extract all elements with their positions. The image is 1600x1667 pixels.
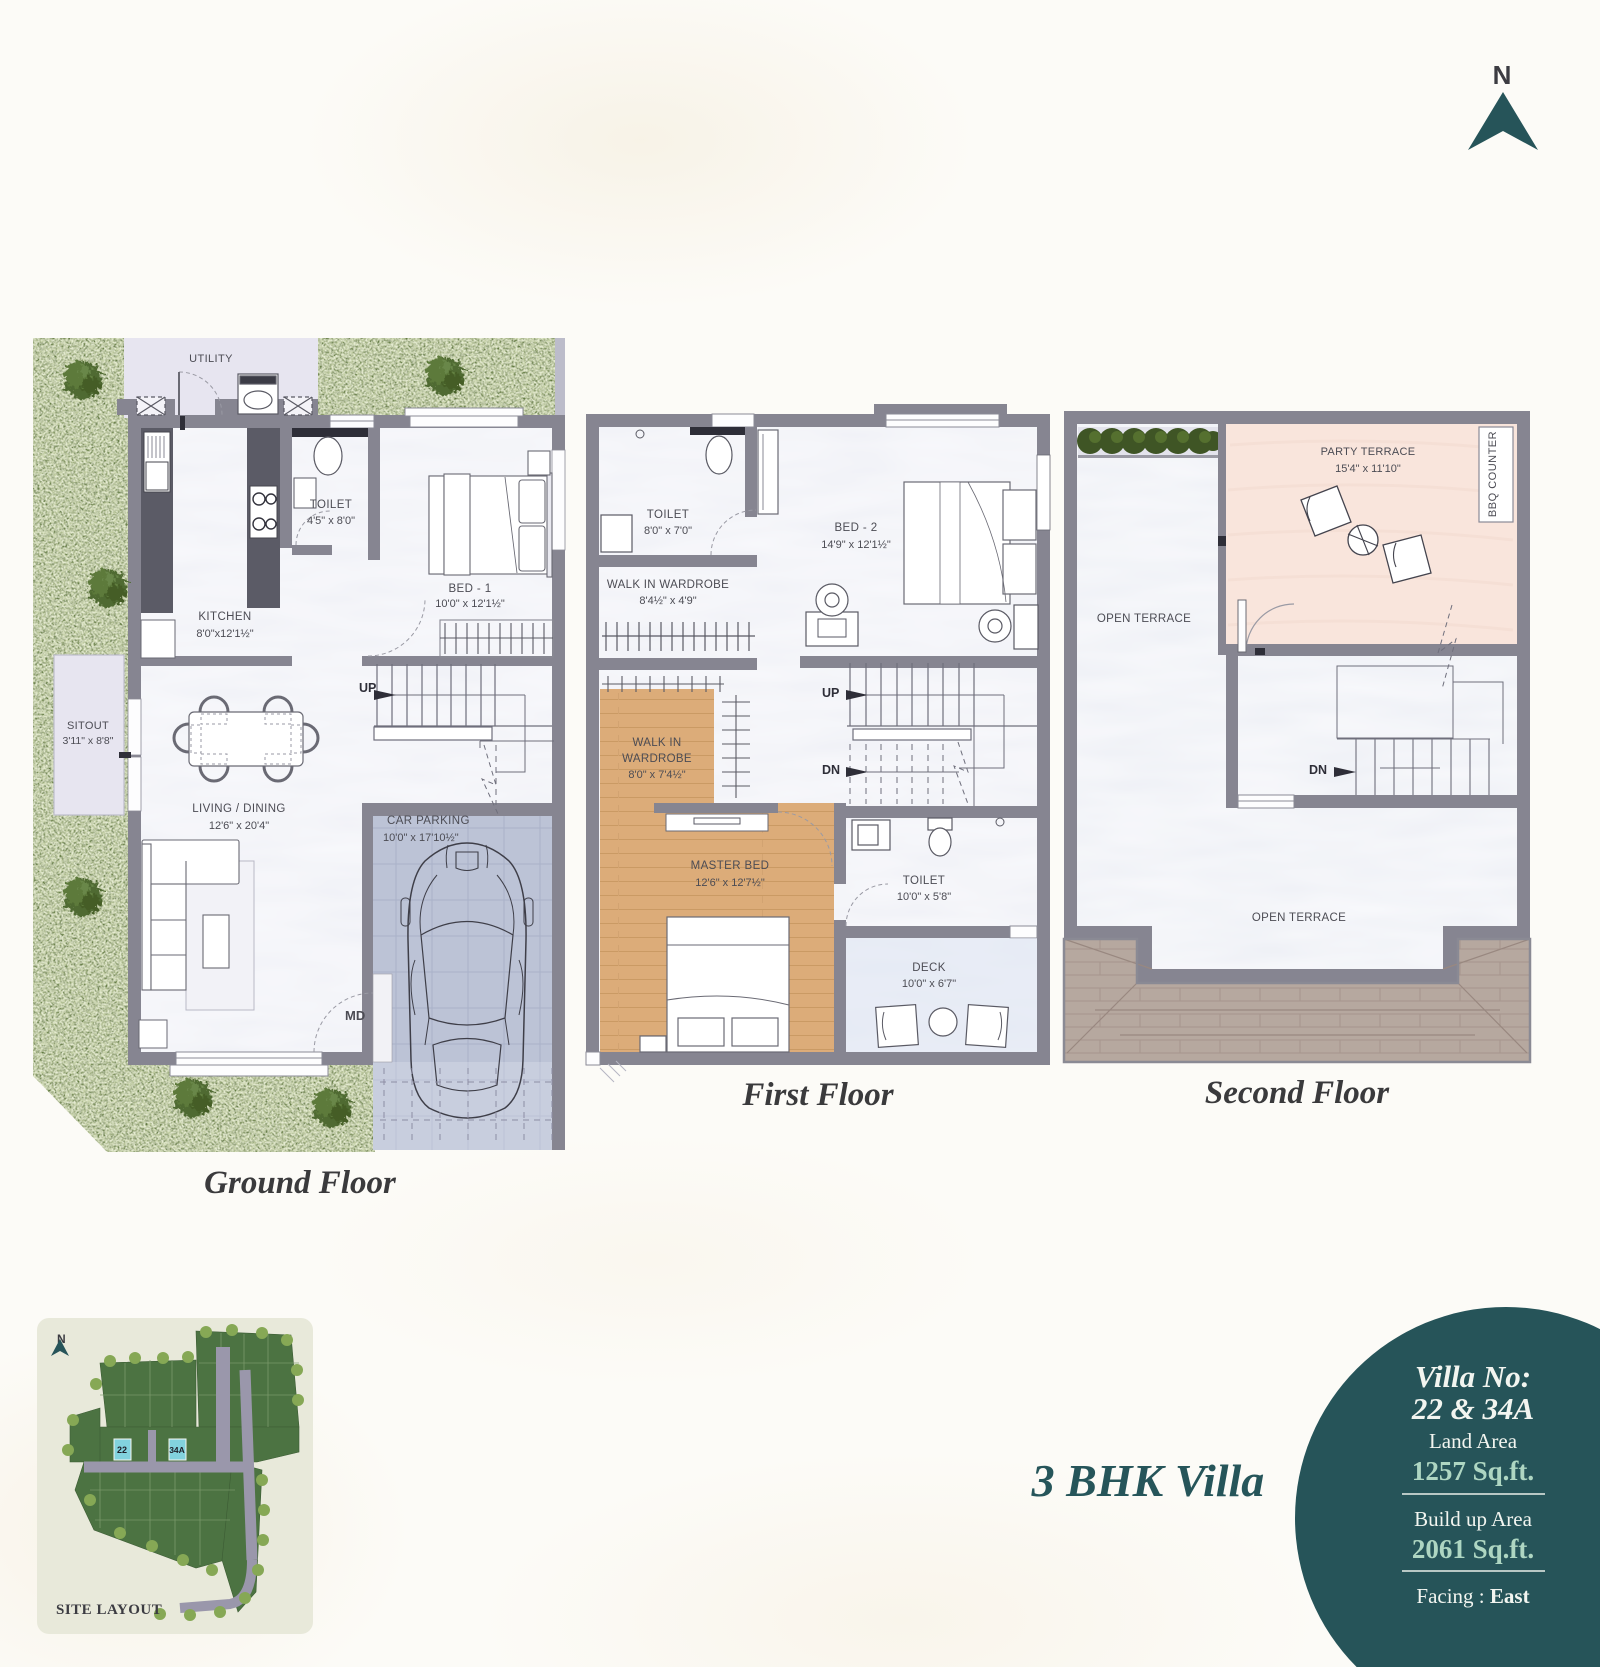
- svg-text:Build up Area: Build up Area: [1414, 1507, 1532, 1531]
- svg-text:SITOUT: SITOUT: [67, 720, 109, 732]
- svg-text:14'9" x 12'1½": 14'9" x 12'1½": [821, 539, 891, 551]
- svg-text:BBQ COUNTER: BBQ COUNTER: [1487, 431, 1499, 517]
- svg-text:PARTY TERRACE: PARTY TERRACE: [1321, 446, 1416, 458]
- svg-text:TOILET: TOILET: [903, 875, 945, 887]
- svg-text:Villa No:: Villa No:: [1415, 1359, 1531, 1394]
- svg-text:CAR PARKING: CAR PARKING: [387, 815, 470, 827]
- svg-text:BED - 2: BED - 2: [834, 522, 877, 534]
- svg-text:8'0"x12'1½": 8'0"x12'1½": [196, 628, 253, 640]
- svg-text:TOILET: TOILET: [310, 499, 352, 511]
- svg-text:12'6" x 20'4": 12'6" x 20'4": [209, 820, 269, 832]
- svg-text:DN: DN: [822, 763, 840, 777]
- svg-text:UP: UP: [822, 686, 839, 700]
- svg-text:1257 Sq.ft.: 1257 Sq.ft.: [1412, 1456, 1534, 1486]
- svg-text:10'0" x 12'1½": 10'0" x 12'1½": [435, 598, 505, 610]
- svg-text:22 & 34A: 22 & 34A: [1411, 1391, 1534, 1426]
- svg-text:TOILET: TOILET: [647, 509, 689, 521]
- svg-text:10'0" x 5'8": 10'0" x 5'8": [897, 891, 951, 903]
- svg-text:2061 Sq.ft.: 2061 Sq.ft.: [1412, 1534, 1534, 1564]
- svg-text:WALK IN WARDROBE: WALK IN WARDROBE: [607, 579, 729, 591]
- svg-text:MASTER BED: MASTER BED: [691, 860, 770, 872]
- svg-text:12'6" x 12'7½": 12'6" x 12'7½": [695, 877, 765, 889]
- svg-text:8'4½" x 4'9": 8'4½" x 4'9": [639, 595, 696, 607]
- svg-text:4'5" x 8'0": 4'5" x 8'0": [307, 515, 355, 527]
- svg-text:LIVING / DINING: LIVING / DINING: [192, 803, 286, 815]
- svg-text:SITE LAYOUT: SITE LAYOUT: [56, 1602, 162, 1618]
- svg-text:UP: UP: [359, 681, 376, 695]
- svg-text:10'0" x 17'10½": 10'0" x 17'10½": [383, 832, 459, 844]
- svg-text:KITCHEN: KITCHEN: [198, 611, 251, 623]
- svg-text:WALK IN: WALK IN: [633, 737, 682, 749]
- svg-text:Facing : East: Facing : East: [1416, 1584, 1529, 1608]
- svg-text:34A: 34A: [169, 1445, 185, 1455]
- svg-text:10'0" x 6'7": 10'0" x 6'7": [902, 978, 956, 990]
- svg-text:First Floor: First Floor: [741, 1077, 894, 1113]
- svg-text:UTILITY: UTILITY: [189, 353, 233, 365]
- svg-text:3'11" x 8'8": 3'11" x 8'8": [63, 735, 114, 747]
- svg-text:Second Floor: Second Floor: [1205, 1075, 1390, 1111]
- svg-text:MD: MD: [345, 1008, 365, 1023]
- svg-text:22: 22: [117, 1445, 127, 1455]
- svg-text:3 BHK Villa: 3 BHK Villa: [1031, 1455, 1265, 1506]
- svg-text:8'0" x 7'4½": 8'0" x 7'4½": [628, 769, 685, 781]
- svg-text:DECK: DECK: [912, 962, 946, 974]
- svg-text:DN: DN: [1309, 763, 1327, 777]
- svg-text:Ground Floor: Ground Floor: [204, 1165, 397, 1201]
- svg-text:BED - 1: BED - 1: [448, 583, 491, 595]
- svg-text:WARDROBE: WARDROBE: [622, 753, 692, 765]
- svg-text:Land Area: Land Area: [1429, 1429, 1518, 1453]
- svg-text:OPEN TERRACE: OPEN TERRACE: [1252, 912, 1346, 924]
- svg-text:OPEN TERRACE: OPEN TERRACE: [1097, 613, 1191, 625]
- svg-text:N: N: [1493, 60, 1512, 90]
- svg-text:15'4" x 11'10": 15'4" x 11'10": [1335, 463, 1401, 475]
- svg-text:8'0" x 7'0": 8'0" x 7'0": [644, 525, 692, 537]
